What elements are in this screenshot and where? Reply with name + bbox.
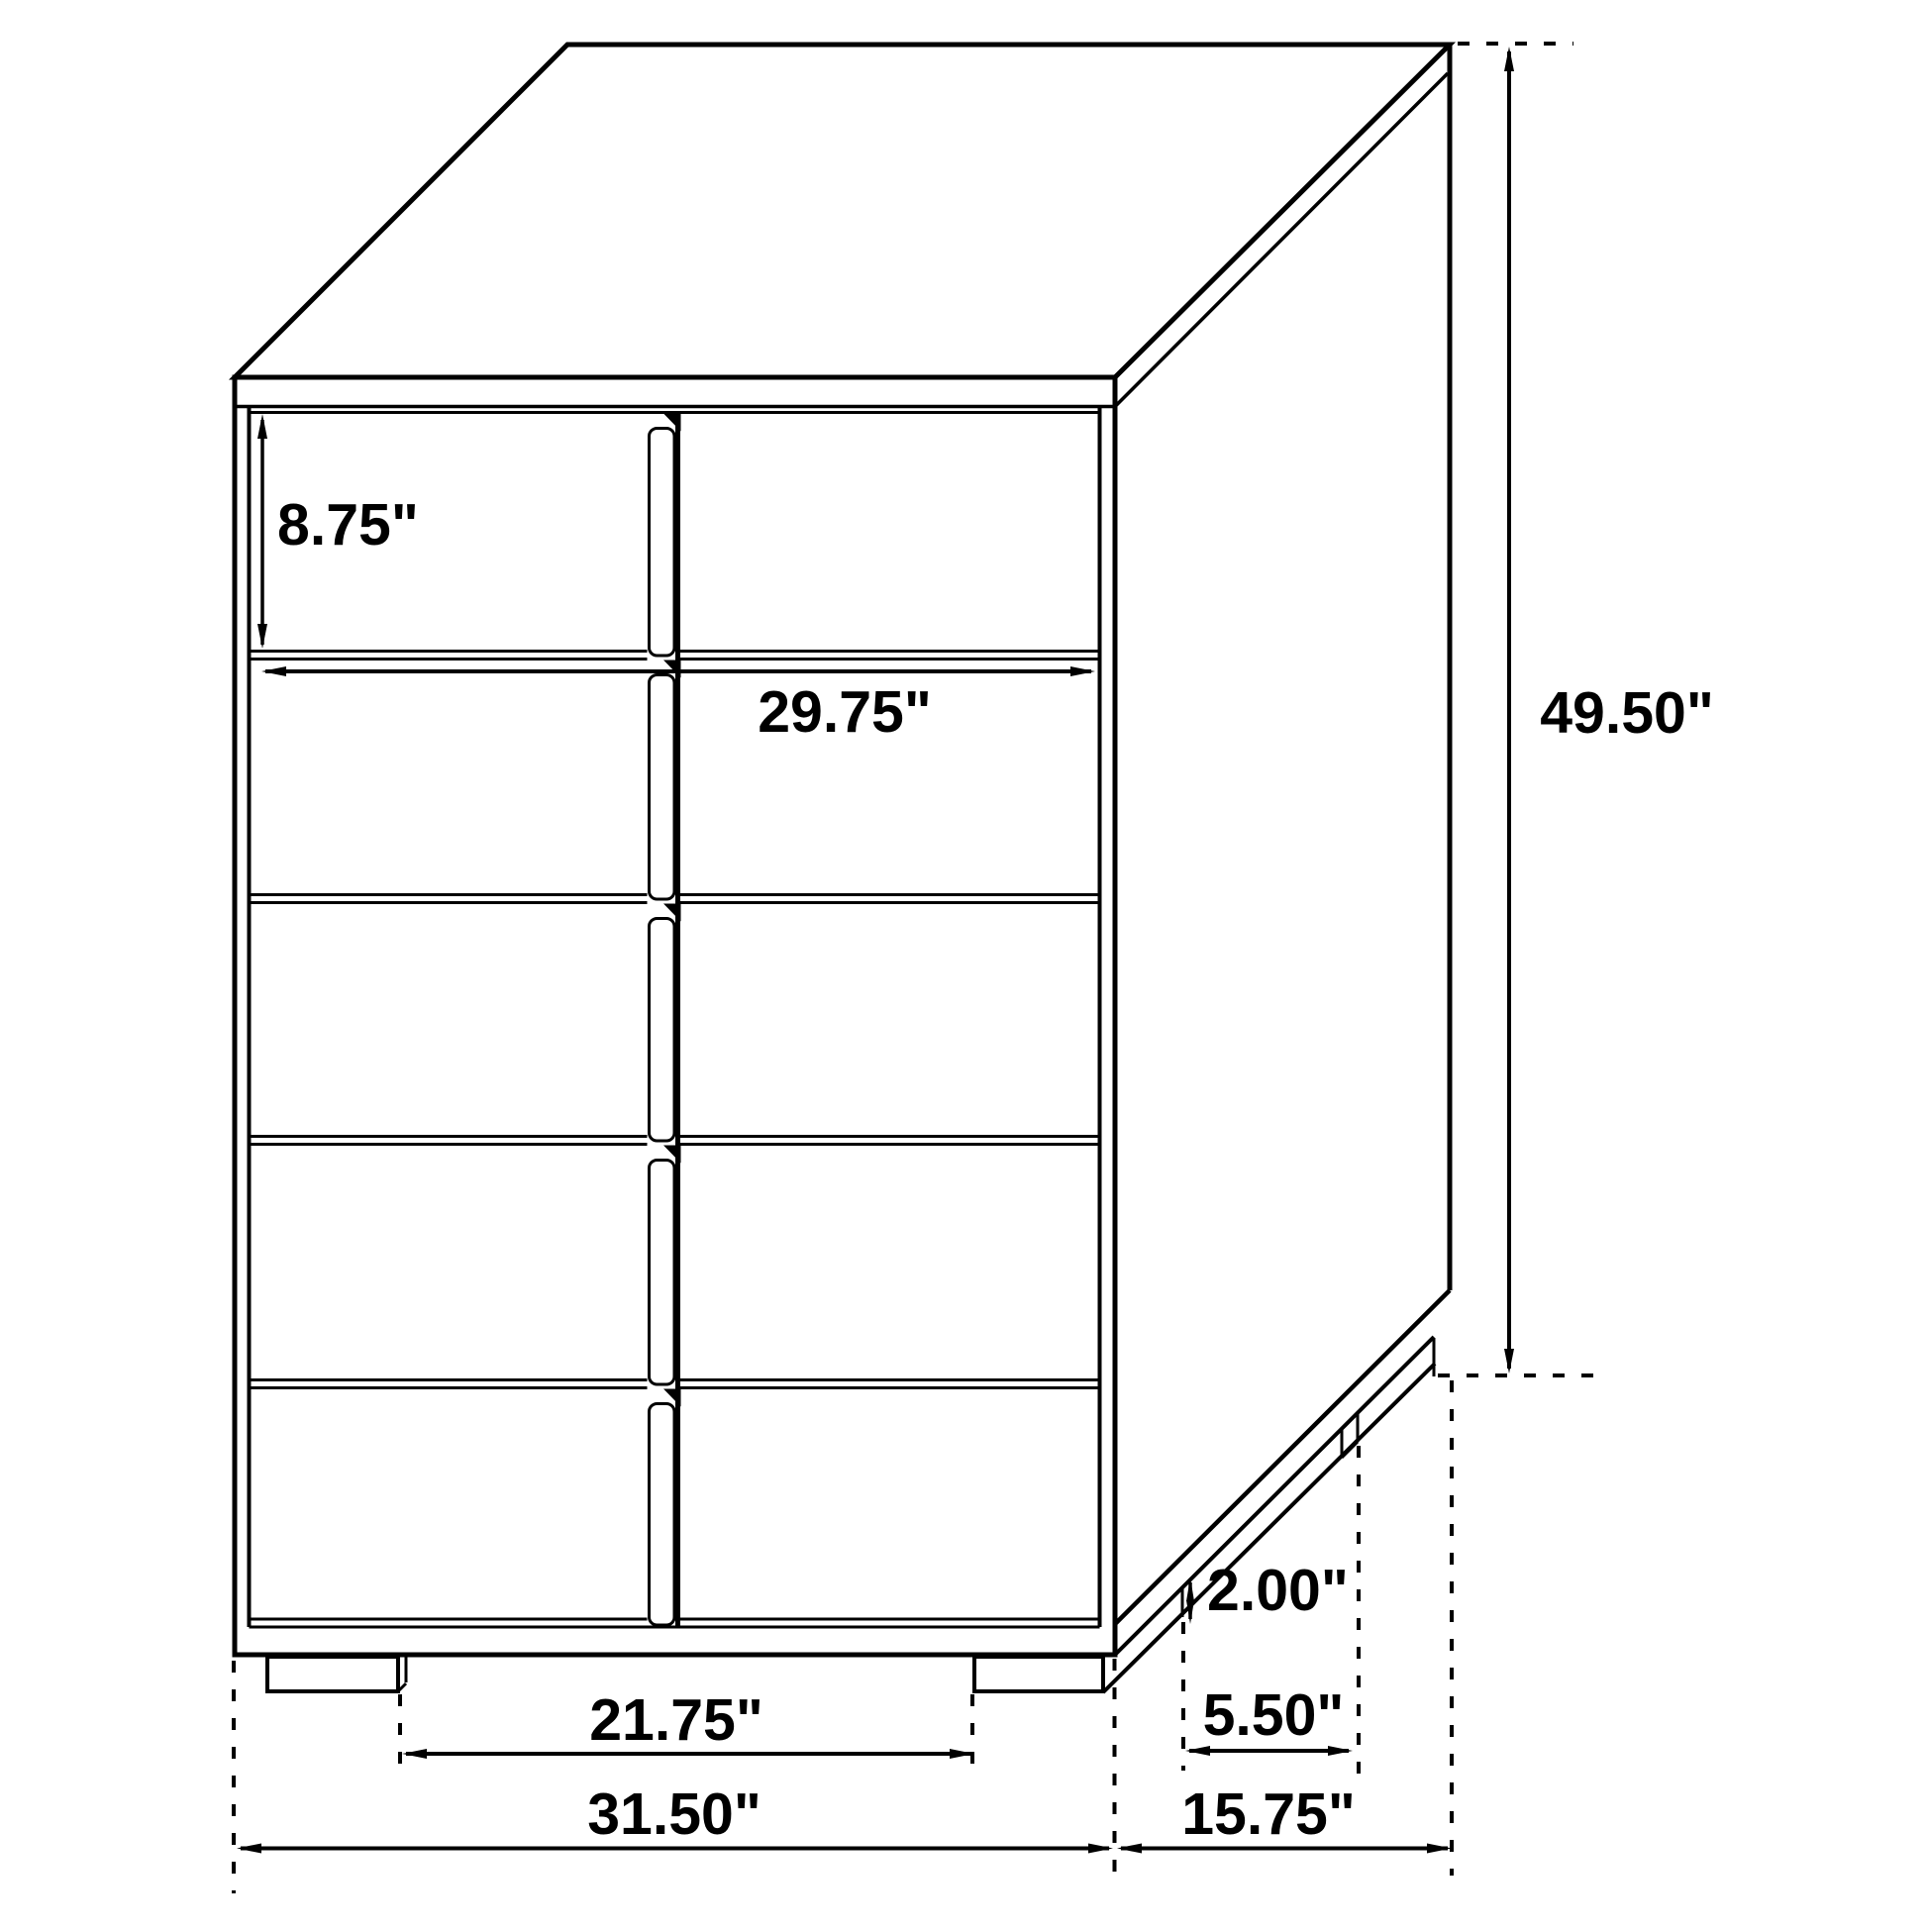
svg-text:5.50": 5.50" bbox=[1203, 1682, 1345, 1748]
svg-text:49.50": 49.50" bbox=[1540, 680, 1714, 746]
svg-text:15.75": 15.75" bbox=[1181, 1781, 1356, 1847]
svg-text:31.50": 31.50" bbox=[587, 1781, 761, 1847]
svg-text:2.00": 2.00" bbox=[1207, 1558, 1349, 1623]
svg-text:8.75": 8.75" bbox=[277, 492, 419, 558]
svg-text:21.75": 21.75" bbox=[589, 1687, 763, 1753]
svg-text:29.75": 29.75" bbox=[758, 679, 932, 745]
